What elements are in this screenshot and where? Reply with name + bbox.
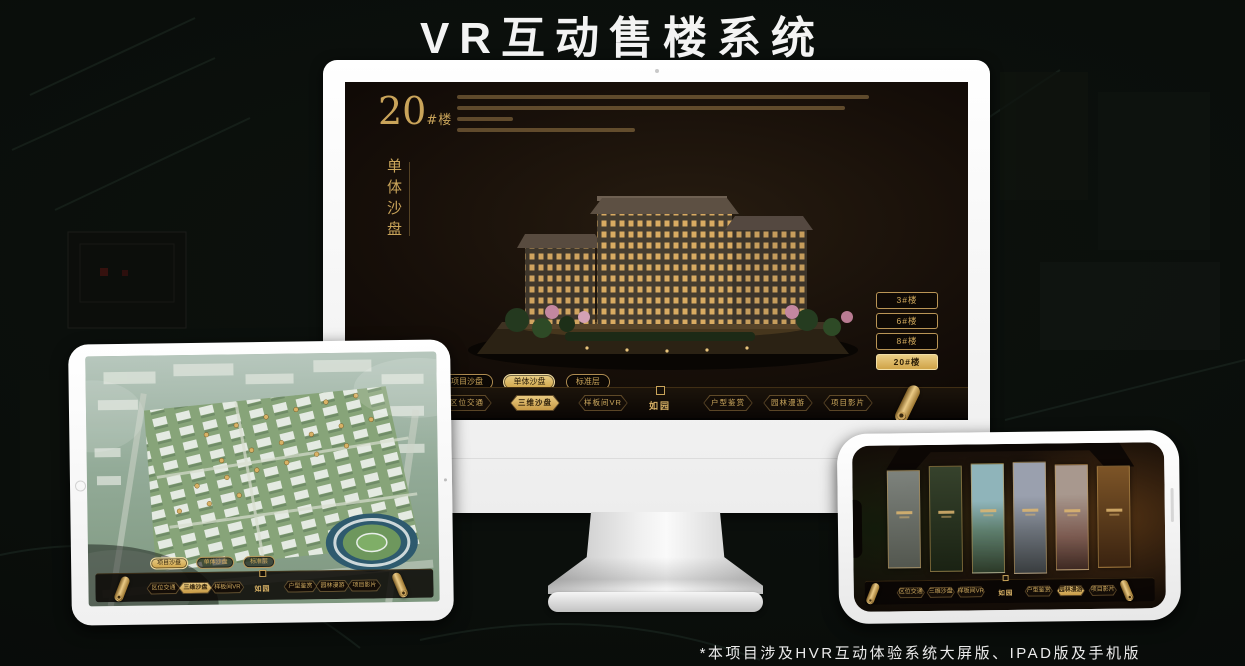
floor-button-20[interactable]: 20#楼 [876, 354, 938, 371]
nav-item-label: 户型鉴赏 [700, 395, 756, 411]
footnote-text: *本项目涉及HVR互动体验系统大屏版、IPAD版及手机版 [700, 642, 1141, 663]
scene-panel-strip [887, 461, 1131, 576]
scene-panel[interactable] [1055, 464, 1089, 570]
nav-item-label: 项目影片 [820, 395, 876, 411]
nav-item-model-room-vr[interactable]: 样板间VR [208, 581, 246, 594]
nav-item-garden-tour[interactable]: 园林漫游 [1055, 585, 1087, 596]
nav-item-project-film[interactable]: 项目影片 [1087, 585, 1119, 596]
tab-standard-floor[interactable]: 标准层 [243, 556, 275, 568]
seal-icon [1003, 575, 1009, 581]
nav-item-label: 样板间VR [955, 586, 987, 597]
nav-item-location-traffic[interactable]: 区位交通 [895, 587, 927, 598]
nav-item-model-room-vr[interactable]: 样板间VR [575, 395, 631, 411]
phone-device: 区位交通 三维沙盘 样板间VR 如园 户型鉴赏 园林漫游 项目影片 [837, 430, 1181, 624]
intro-text-lines [457, 95, 869, 139]
monitor-base [548, 592, 763, 612]
nav-item-label: 园林漫游 [1055, 585, 1087, 596]
scene-panel[interactable] [971, 463, 1005, 573]
nav-item-project-film[interactable]: 项目影片 [820, 395, 876, 411]
brand-logo[interactable]: 如园 [642, 386, 678, 414]
nav-item-garden-tour[interactable]: 园林漫游 [760, 395, 816, 411]
building-unit: #楼 [426, 113, 452, 128]
scroll-handle-icon[interactable] [113, 575, 131, 602]
tablet-subtabs: 项目沙盘 单体沙盘 标准层 [150, 550, 279, 570]
seal-icon [259, 570, 266, 577]
headline-subtitle: 单体沙盘 [384, 158, 405, 242]
nav-item-label: 项目影片 [1087, 585, 1119, 596]
nav-item-label: 样板间VR [575, 395, 631, 411]
brand-logo[interactable]: 如园 [992, 575, 1020, 600]
scene-panel[interactable] [1097, 466, 1131, 568]
nav-item-floorplan[interactable]: 户型鉴赏 [1023, 585, 1055, 596]
webcam-dot-icon [655, 69, 659, 73]
page-title: VR互动售楼系统 [0, 2, 1245, 66]
camera-dot-icon [444, 478, 447, 481]
building-3d-render[interactable] [447, 152, 879, 374]
phone-screen: 区位交通 三维沙盘 样板间VR 如园 户型鉴赏 园林漫游 项目影片 [852, 442, 1166, 612]
building-headline: 20#楼 [378, 92, 452, 130]
nav-item-floorplan[interactable]: 户型鉴赏 [700, 395, 756, 411]
tab-single-sandtable[interactable]: 单体沙盘 [197, 556, 235, 569]
scene-panel[interactable] [887, 470, 921, 568]
notch [853, 500, 863, 558]
scroll-handle-icon[interactable] [391, 571, 409, 598]
scroll-handle-icon[interactable] [865, 582, 880, 605]
floor-button-group: 3#楼 6#楼 8#楼 20#楼 [876, 292, 938, 374]
scroll-handle-icon[interactable] [893, 383, 922, 420]
tab-project-sandtable[interactable]: 项目沙盘 [150, 557, 188, 570]
building-number: 20 [378, 89, 426, 133]
nav-item-label: 区位交通 [895, 587, 927, 598]
scene-panel[interactable] [929, 466, 963, 572]
nav-item-label: 项目影片 [345, 579, 383, 592]
tablet-screen: 项目沙盘 单体沙盘 标准层 区位交通 三维沙盘 样板间VR 如园 户型鉴赏 园林… [85, 352, 439, 607]
floor-button-3[interactable]: 3#楼 [876, 292, 938, 309]
brand-logo[interactable]: 如园 [247, 570, 277, 596]
floor-button-6[interactable]: 6#楼 [876, 313, 938, 330]
nav-item-3d-sandtable[interactable]: 三维沙盘 [925, 587, 957, 598]
nav-item-label: 户型鉴赏 [1023, 585, 1055, 596]
nav-item-label: 三维沙盘 [507, 395, 563, 411]
headline-rule [409, 162, 410, 236]
brand-logo-text: 如园 [998, 589, 1013, 597]
brand-logo-text: 如园 [254, 584, 270, 593]
scene-panel[interactable] [1013, 462, 1047, 574]
tablet-nav-bar: 区位交通 三维沙盘 样板间VR 如园 户型鉴赏 园林漫游 项目影片 [95, 569, 433, 603]
tablet-device: 项目沙盘 单体沙盘 标准层 区位交通 三维沙盘 样板间VR 如园 户型鉴赏 园林… [68, 339, 454, 625]
nav-item-project-film[interactable]: 项目影片 [345, 579, 383, 592]
nav-item-label: 样板间VR [208, 581, 246, 594]
home-button-icon[interactable] [75, 480, 86, 491]
aerial-masterplan-render[interactable] [85, 352, 439, 607]
seal-icon [656, 386, 665, 395]
nav-item-model-room-vr[interactable]: 样板间VR [955, 586, 987, 597]
nav-item-label: 园林漫游 [760, 395, 816, 411]
side-button [1171, 488, 1174, 522]
nav-item-3d-sandtable[interactable]: 三维沙盘 [507, 395, 563, 411]
scroll-handle-icon[interactable] [1119, 579, 1135, 602]
brand-logo-text: 如园 [649, 402, 671, 412]
phone-nav-bar: 区位交通 三维沙盘 样板间VR 如园 户型鉴赏 园林漫游 项目影片 [865, 577, 1155, 605]
promo-canvas: 20#楼 单体沙盘 [0, 0, 1245, 666]
floor-button-8[interactable]: 8#楼 [876, 333, 938, 350]
nav-item-label: 三维沙盘 [925, 587, 957, 598]
